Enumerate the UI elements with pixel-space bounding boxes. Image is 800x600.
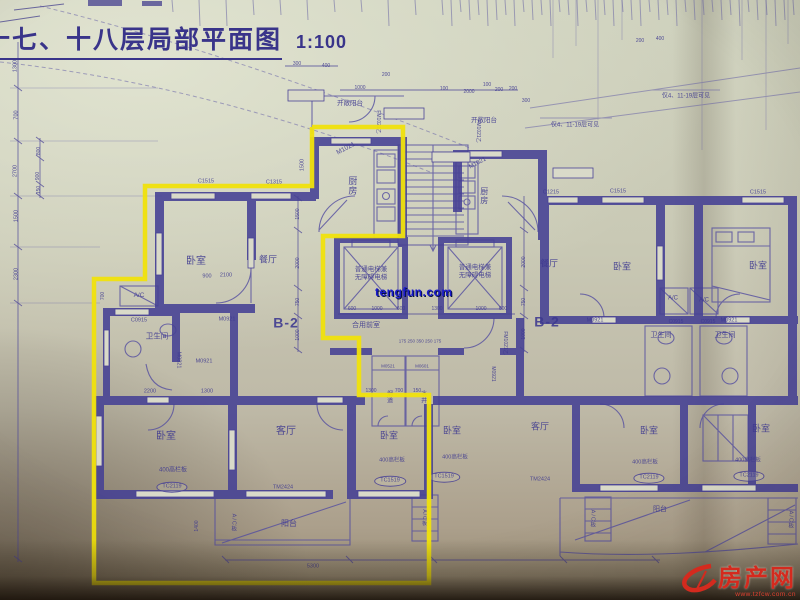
highlight-overlay — [0, 0, 800, 600]
logo-site-name: 房产网 — [718, 567, 796, 591]
watermark: tengfun.com — [375, 285, 453, 299]
blueprint-photo: 十七、十八层局部平面图1:100 厨房M1021卧室9002100餐厅B-2A/… — [0, 0, 800, 600]
unit-highlight-outline — [94, 127, 429, 583]
logo-url: www.tzfcw.com.cn — [735, 591, 796, 598]
logo-swoosh-icon — [676, 560, 718, 598]
site-logo: 房产网 www.tzfcw.com.cn — [676, 560, 796, 598]
